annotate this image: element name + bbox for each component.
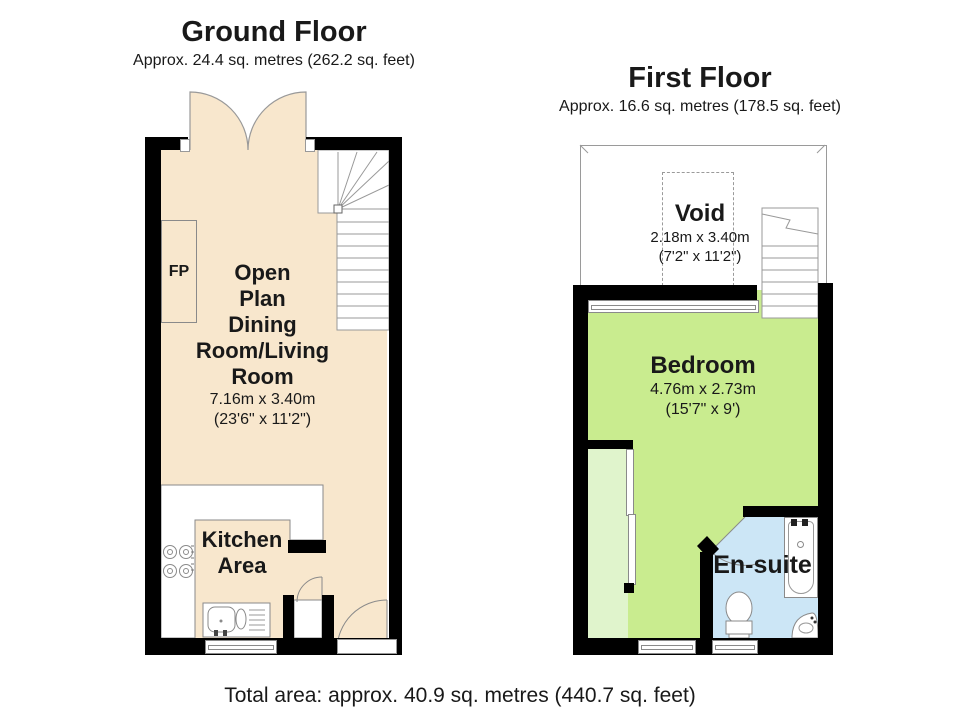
- void-corner-miters: [580, 145, 825, 153]
- gf-door-jamb-left: [180, 139, 190, 152]
- ensuite-label: En-suite: [695, 551, 830, 579]
- ff-window-ensuite-pane: [715, 645, 755, 650]
- ff-wall-ensuite-top: [743, 506, 818, 517]
- living-room-line-3: Dining: [170, 312, 355, 338]
- ff-wall-bottom: [573, 638, 833, 655]
- ff-wall-closet-stub-small: [624, 583, 634, 593]
- living-room-line-5: Room: [170, 364, 355, 390]
- kitchen-line-1: Kitchen: [192, 527, 292, 553]
- living-room-line-4: Room/Living: [170, 338, 355, 364]
- bathtub-tap-right: [802, 519, 808, 526]
- bathtub-drain: [797, 541, 804, 548]
- bedroom-size-imperial: (15'7" x 9'): [593, 400, 813, 420]
- gf-door-jamb-right: [305, 139, 315, 152]
- ff-window-void-screen: [588, 300, 759, 313]
- ff-window-void-screen-pane: [591, 305, 756, 310]
- gf-wall-kitchen-stub: [288, 540, 326, 553]
- bedroom-label: Bedroom 4.76m x 2.73m (15'7" x 9'): [593, 352, 813, 420]
- gf-window-kitchen: [205, 640, 277, 654]
- ensuite-name: En-suite: [695, 551, 830, 579]
- toilet-icon: [726, 592, 752, 638]
- total-area-footer: Total area: approx. 40.9 sq. metres (440…: [0, 684, 920, 708]
- sink-icon: [203, 603, 270, 637]
- gf-wall-cupboard-right: [322, 595, 334, 638]
- gf-wall-left: [145, 137, 161, 655]
- gf-window-kitchen-pane: [208, 645, 274, 650]
- cupboard-door-icon: [294, 577, 322, 638]
- kitchen-line-2: Area: [192, 553, 292, 579]
- total-area-text: Total area: approx. 40.9 sq. metres (440…: [224, 684, 696, 707]
- gf-wall-top-right: [306, 137, 402, 150]
- living-room-size-imperial: (23'6" x 11'2"): [170, 410, 355, 430]
- ff-window-bedroom: [638, 640, 696, 654]
- void-label: Void 2.18m x 3.40m (7'2" x 11'2"): [600, 200, 800, 266]
- void-size-imperial: (7'2" x 11'2"): [600, 247, 800, 266]
- gf-wall-right: [389, 137, 402, 655]
- living-room-line-1: Open: [170, 260, 355, 286]
- bedroom-size-metric: 4.76m x 2.73m: [593, 380, 813, 400]
- french-doors-icon: [190, 92, 306, 150]
- ff-window-bedroom-pane: [641, 645, 693, 650]
- ff-wall-right: [818, 283, 833, 655]
- void-size-metric: 2.18m x 3.40m: [600, 228, 800, 247]
- ff-wall-left: [573, 285, 588, 655]
- bathtub-tap-left: [791, 519, 797, 526]
- gf-entrance-threshold: [337, 639, 397, 654]
- living-room-line-2: Plan: [170, 286, 355, 312]
- ff-window-ensuite: [712, 640, 758, 654]
- bedroom-name: Bedroom: [593, 352, 813, 380]
- floorplan-canvas: Ground Floor Approx. 24.4 sq. metres (26…: [0, 0, 980, 712]
- ff-wall-top: [573, 285, 757, 300]
- living-room-size-metric: 7.16m x 3.40m: [170, 390, 355, 410]
- ff-wall-closet-stub: [585, 440, 633, 449]
- living-room-label: Open Plan Dining Room/Living Room 7.16m …: [170, 260, 355, 430]
- kitchen-area-label: Kitchen Area: [192, 527, 292, 579]
- gf-wall-cupboard-left: [283, 595, 294, 638]
- void-name: Void: [600, 200, 800, 228]
